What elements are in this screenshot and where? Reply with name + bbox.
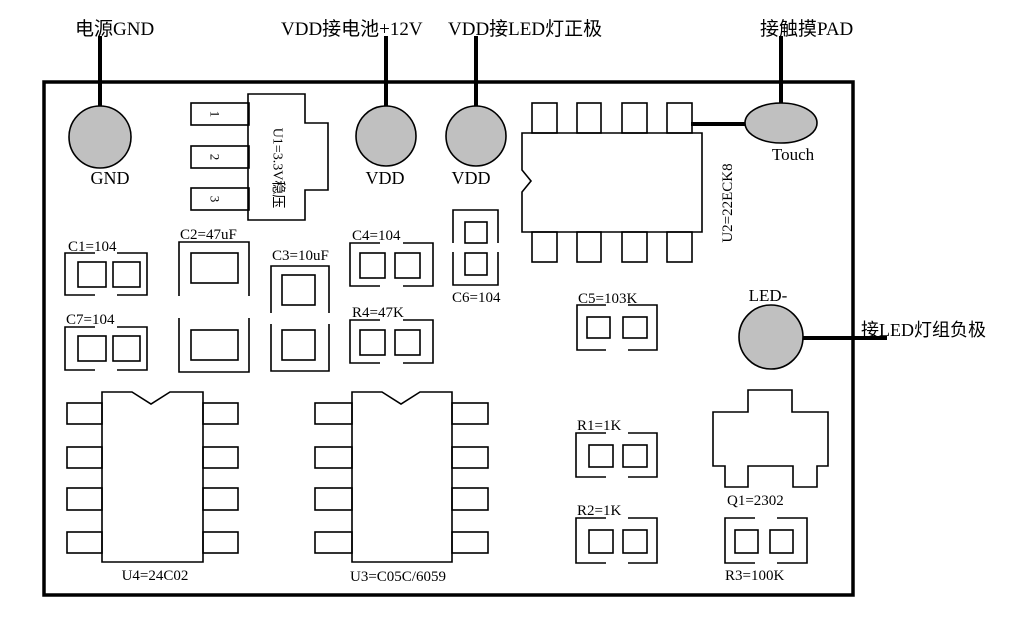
- gnd-pad-label: GND: [91, 168, 130, 188]
- u3-label: U3=C05C/6059: [350, 569, 446, 585]
- c3-pad-top: [282, 275, 315, 305]
- r2-pad-left: [589, 530, 613, 553]
- u3-pin-right-4: [452, 532, 488, 553]
- r2-label: R2=1K: [577, 503, 621, 519]
- c3-label: C3=10uF: [272, 248, 329, 264]
- u4-pin-right-4: [203, 532, 238, 553]
- component-c3: C3=10uF: [271, 248, 329, 371]
- component-c2: C2=47uF: [179, 227, 249, 372]
- u3-pin-right-3: [452, 488, 488, 510]
- u2-label: U2=22ECK8: [720, 163, 736, 242]
- c2-label: C2=47uF: [180, 227, 237, 243]
- u1-label: U1=3.3V稳压: [270, 128, 286, 209]
- u4-pin-right-2: [203, 447, 238, 468]
- annotation-vdd-battery: VDD接电池+12V: [281, 18, 423, 40]
- u2-pin-bottom-2: [577, 232, 601, 262]
- c5-pad-right: [623, 317, 647, 338]
- component-c7: C7=104: [65, 312, 147, 370]
- u2-pin-bottom-3: [622, 232, 647, 262]
- c7-pad-right: [113, 336, 140, 361]
- component-r2: R2=1K: [576, 503, 657, 563]
- c4-pad-left: [360, 253, 385, 278]
- u3-pin-right-1: [452, 403, 488, 424]
- u3-pin-left-3: [315, 488, 352, 510]
- component-r1: R1=1K: [576, 418, 657, 477]
- u3-pin-right-2: [452, 447, 488, 468]
- u4-pin-left-4: [67, 532, 102, 553]
- r1-outline: [576, 433, 657, 477]
- component-c5: C5=103K: [577, 291, 657, 350]
- component-r3: R3=100K: [725, 518, 807, 584]
- annotation-vdd-led-positive: VDD接LED灯正极: [448, 18, 602, 40]
- u4-pin-left-3: [67, 488, 102, 510]
- c1-pad-left: [78, 262, 106, 287]
- u2-pin-bottom-4: [667, 232, 692, 262]
- c6-label: C6=104: [452, 290, 501, 306]
- c1-pad-right: [113, 262, 140, 287]
- component-u3: U3=C05C/6059: [315, 392, 488, 585]
- vdd-left-pad-label: VDD: [366, 168, 405, 188]
- r2-outline: [576, 518, 657, 563]
- c2-pad-bottom: [191, 330, 238, 360]
- c4-pad-right: [395, 253, 420, 278]
- r1-pad-left: [589, 445, 613, 467]
- r4-pad-left: [360, 330, 385, 355]
- u3-pin-left-4: [315, 532, 352, 553]
- u3-body: [352, 392, 452, 562]
- r3-outline: [725, 518, 807, 563]
- r3-label: R3=100K: [725, 568, 784, 584]
- c5-pad-left: [587, 317, 610, 338]
- u4-pin-right-3: [203, 488, 238, 510]
- c3-outline: [271, 266, 329, 371]
- u4-body: [102, 392, 203, 562]
- component-u4: U4=24C02: [67, 392, 238, 584]
- vdd-right-pad: [446, 106, 506, 166]
- touch-pad-label: Touch: [772, 145, 815, 164]
- c7-label: C7=104: [66, 312, 115, 328]
- u2-pin-top-4: [667, 103, 692, 133]
- r1-label: R1=1K: [577, 418, 621, 434]
- u2-body: [522, 133, 702, 232]
- c3-pad-bottom: [282, 330, 315, 360]
- u2-pin-top-3: [622, 103, 647, 133]
- component-c6: C6=104: [452, 210, 501, 306]
- c2-pad-top: [191, 253, 238, 283]
- c5-outline: [577, 305, 657, 350]
- u4-pin-left-2: [67, 447, 102, 468]
- component-u2: U2=22ECK8: [522, 103, 736, 262]
- u3-pin-left-2: [315, 447, 352, 468]
- component-c1: C1=104: [65, 239, 147, 295]
- u3-pin-left-1: [315, 403, 352, 424]
- gnd-pad: [69, 106, 131, 168]
- u1-body: [248, 94, 328, 220]
- pcb-wiring-diagram: 电源GND VDD接电池+12V VDD接LED灯正极 接触摸PAD 接LED灯…: [0, 0, 1022, 620]
- component-r4: R4=47K: [350, 305, 433, 363]
- vdd-right-pad-label: VDD: [452, 168, 491, 188]
- annotation-touch-pad: 接触摸PAD: [760, 18, 853, 40]
- annotation-led-group-negative: 接LED灯组负极: [861, 320, 986, 340]
- u1-pin2-number: 2: [208, 154, 223, 161]
- u1-pin3-number: 3: [208, 196, 223, 203]
- r1-pad-right: [623, 445, 647, 467]
- u2-pin-top-1: [532, 103, 557, 133]
- c6-pad-bottom: [465, 253, 487, 275]
- component-c4: C4=104: [350, 228, 433, 286]
- u4-label: U4=24C02: [122, 568, 189, 584]
- vdd-left-pad: [356, 106, 416, 166]
- q1-outline: [713, 390, 828, 487]
- r3-pad-left: [735, 530, 758, 553]
- r2-pad-right: [623, 530, 647, 553]
- led-minus-pad: [739, 305, 803, 369]
- r4-pad-right: [395, 330, 420, 355]
- q1-label: Q1=2302: [727, 493, 784, 509]
- diagram-canvas: 电源GND VDD接电池+12V VDD接LED灯正极 接触摸PAD 接LED灯…: [0, 0, 1022, 620]
- u1-pin1-number: 1: [208, 111, 223, 118]
- led-minus-pad-label: LED-: [749, 286, 788, 305]
- u2-pin-bottom-1: [532, 232, 557, 262]
- component-u1: 1 2 3 U1=3.3V稳压: [191, 94, 328, 220]
- c6-pad-top: [465, 222, 487, 243]
- touch-pad: [745, 103, 817, 143]
- c7-pad-left: [78, 336, 106, 361]
- u4-pin-left-1: [67, 403, 102, 424]
- u4-pin-right-1: [203, 403, 238, 424]
- r3-pad-right: [770, 530, 793, 553]
- c4-label: C4=104: [352, 228, 401, 244]
- u2-pin-top-2: [577, 103, 601, 133]
- component-q1: Q1=2302: [713, 390, 828, 509]
- annotation-power-gnd: 电源GND: [75, 18, 154, 40]
- r4-label: R4=47K: [352, 305, 404, 321]
